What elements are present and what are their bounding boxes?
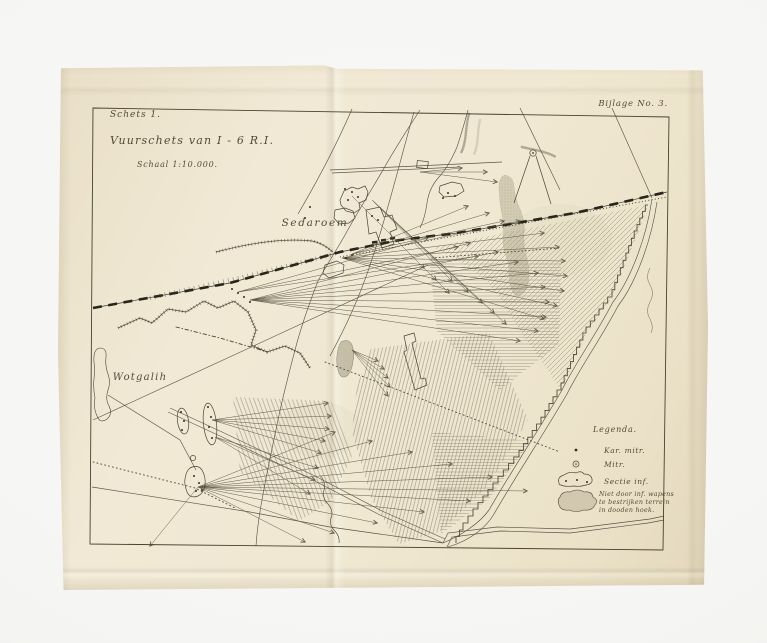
map-sheet: Sedaroem Wotgalih Schets 1. Vuurschets v…: [57, 63, 708, 590]
tree-lines: [461, 114, 556, 157]
map-scale: Schaal 1:10.000.: [137, 160, 218, 169]
svg-text:in dooden hoek.: in dooden hoek.: [599, 507, 654, 514]
photo-backdrop: Sedaroem Wotgalih Schets 1. Vuurschets v…: [0, 0, 767, 643]
svg-text:Niet door inf. wapens: Niet door inf. wapens: [598, 491, 675, 498]
map-title: Vuurschets van I - 6 R.I.: [110, 134, 274, 147]
svg-text:te bestrijken terrein: te bestrijken terrein: [599, 499, 670, 506]
legend-label-kar-mitr: Kar. mitr.: [603, 446, 645, 455]
map-drawing: Sedaroem Wotgalih Schets 1. Vuurschets v…: [57, 63, 708, 590]
legend: Legenda. Kar. mitr. Mitr. Sectie inf.: [558, 425, 674, 514]
legend-label-mitr: Mitr.: [603, 460, 625, 469]
dead-angle-icon: [558, 490, 596, 512]
appendix-number: Bijlage No. 3.: [597, 99, 668, 109]
place-labels: Sedaroem Wotgalih: [113, 217, 349, 383]
sketch-number: Schets 1.: [110, 110, 161, 120]
kar-mitr-icon: [575, 449, 578, 452]
sectie-inf-icon: [559, 472, 593, 487]
place-label-sedaroem: Sedaroem: [282, 217, 349, 229]
legend-label-sectie-inf: Sectie inf.: [604, 477, 649, 486]
legend-label-dead-angle: Niet door inf. wapens te bestrijken terr…: [598, 491, 675, 514]
place-label-wotgalih: Wotgalih: [113, 372, 167, 383]
mitr-icon: [573, 461, 579, 467]
legend-title: Legenda.: [592, 425, 637, 434]
toothed-boundaries: [118, 240, 333, 368]
